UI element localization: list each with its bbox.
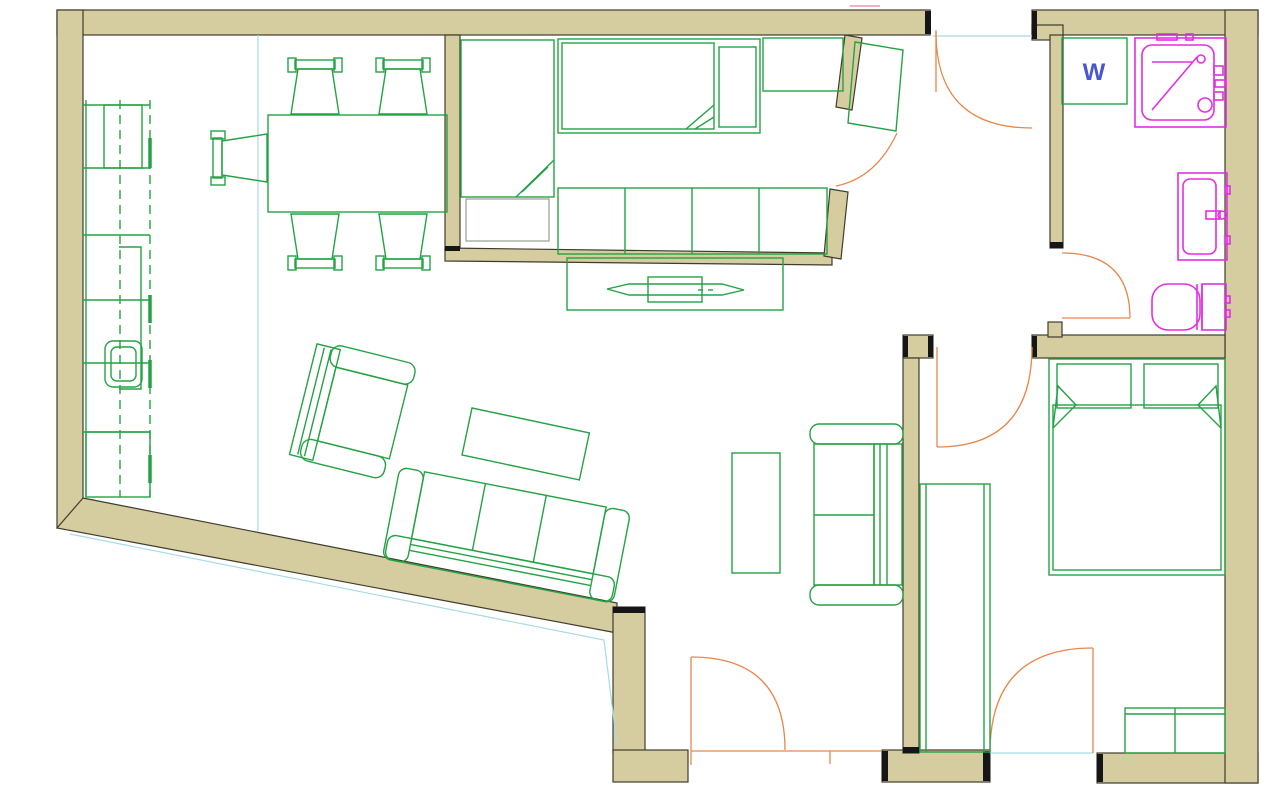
sofa-seats [412,472,607,574]
entry-bottom-door-arc [691,657,785,750]
counter-inset [119,247,141,389]
loveseat-back [874,444,902,585]
armchair-back-line [298,348,325,455]
wall-shelf [763,38,843,91]
bed-fold-corner [516,160,554,197]
bedroom-main [920,359,1225,753]
dining-chair [288,58,342,114]
wall-top-left [57,10,930,35]
tv-base [648,277,702,302]
wall-bathroom-left [1050,35,1063,248]
wall-cap [1032,336,1037,357]
double-bed [1049,359,1225,575]
wall-top-right [1032,10,1258,35]
wall-angled-bottom-left [57,498,617,633]
armchair-seat [318,367,408,459]
shower-enclosure [1135,38,1226,127]
shower-diagonal [1152,57,1197,110]
bed-mattress [1053,405,1221,570]
wall-cap [1032,11,1037,39]
sofa-seat-divider [472,484,485,551]
wall-bathroom-door-stub [1048,322,1062,337]
kitchen-sink-basin [111,347,136,381]
shower-valve [1214,92,1223,100]
wall-cap [903,336,908,357]
armchair [289,340,417,481]
shower-valve [1215,80,1225,87]
wall-cap [445,246,460,251]
sink-basin [1183,179,1216,254]
armchair-arm [328,344,417,386]
sofa-arm [588,507,630,603]
wall-bottom-middle [882,750,990,782]
wall-entry-column [613,607,645,753]
wall-cap [1050,242,1063,248]
wall-entry-foot [613,750,688,782]
bedroom-main-door-arc [937,347,1032,447]
shower-head [1198,98,1212,112]
bed-pillow [466,199,549,241]
wall-cap [903,747,919,753]
tv-unit [567,258,783,310]
wall-cap [983,751,990,781]
wall-bedroom-small-door-stub [836,35,862,110]
floor-plan-page: W [0,0,1280,793]
dining-table [268,115,447,212]
sofa-seat-divider [533,495,546,562]
dining-chair [376,214,430,270]
wall-bedroom-small-bottom [445,248,832,265]
wall-left [57,10,83,528]
bedroom-main-second-door-arc [990,648,1093,753]
wall-cap [925,11,931,34]
bed-pillow-right [1144,364,1218,408]
bathroom: W [1062,34,1230,330]
washer-label: W [1083,59,1106,86]
wall-cap [613,607,645,613]
shower-valve [1214,66,1223,75]
bathroom-sink [1178,173,1230,260]
dining-chair [288,214,342,270]
wall-end-caps [445,11,1103,782]
appliance-outline [104,105,142,168]
wall-right [1225,10,1258,783]
wall-cap [1097,754,1103,782]
side-table [732,453,780,573]
bed-mattress [562,43,714,129]
bed-pillow [719,47,756,127]
base-cabinet [86,432,150,497]
walls [57,10,1258,783]
floor-plan-canvas: W [0,0,1280,793]
sofa-arm [382,467,424,563]
bedroom-small-door-arc [836,133,897,186]
single-bed-horizontal [558,39,760,133]
entry-top-door-arc [936,32,1032,128]
shower-drain [1197,55,1205,63]
bed-fold-corner [686,105,714,129]
dining-chair [376,58,430,114]
loveseat-arm [810,585,903,605]
armchair-arm [299,438,388,480]
dining-set [211,58,447,270]
toilet [1152,284,1230,330]
wall-cap [882,751,888,781]
bathroom-door-arc [1062,253,1130,318]
toilet-tank [1202,284,1226,330]
coffee-table-top [462,408,589,480]
coffee-table [462,408,589,480]
guides [70,35,1093,753]
bed-pillow-left [1057,364,1131,408]
toilet-bowl [1152,284,1200,330]
wall-bedroom-main-left [903,358,919,753]
tv-screen [607,284,744,295]
kitchen-counter [83,100,150,497]
wall-bathroom-bedroom-divider [1032,335,1225,358]
shower [1135,34,1226,127]
closet [920,484,990,752]
loveseat [810,424,903,605]
wall-cap [928,336,933,357]
armchair-back [289,344,340,460]
loveseat-arm [810,424,903,444]
